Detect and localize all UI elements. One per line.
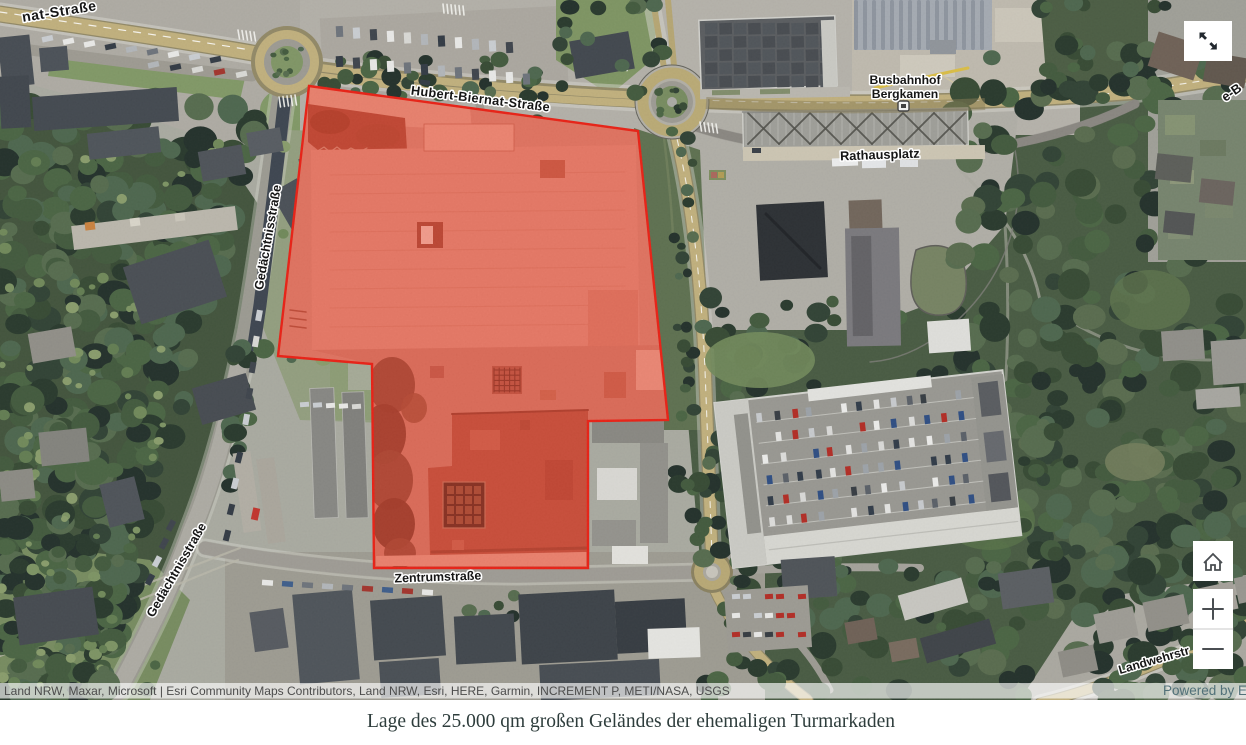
svg-text:Powered by Esri: Powered by Esri: [1163, 683, 1246, 698]
svg-text:Rathausplatz: Rathausplatz: [840, 146, 920, 164]
svg-text:Busbahnhof: Busbahnhof: [869, 73, 941, 87]
svg-text:Bergkamen: Bergkamen: [872, 87, 938, 101]
svg-text:Land NRW, Maxar, Microsoft | E: Land NRW, Maxar, Microsoft | Esri Commun…: [4, 684, 730, 698]
